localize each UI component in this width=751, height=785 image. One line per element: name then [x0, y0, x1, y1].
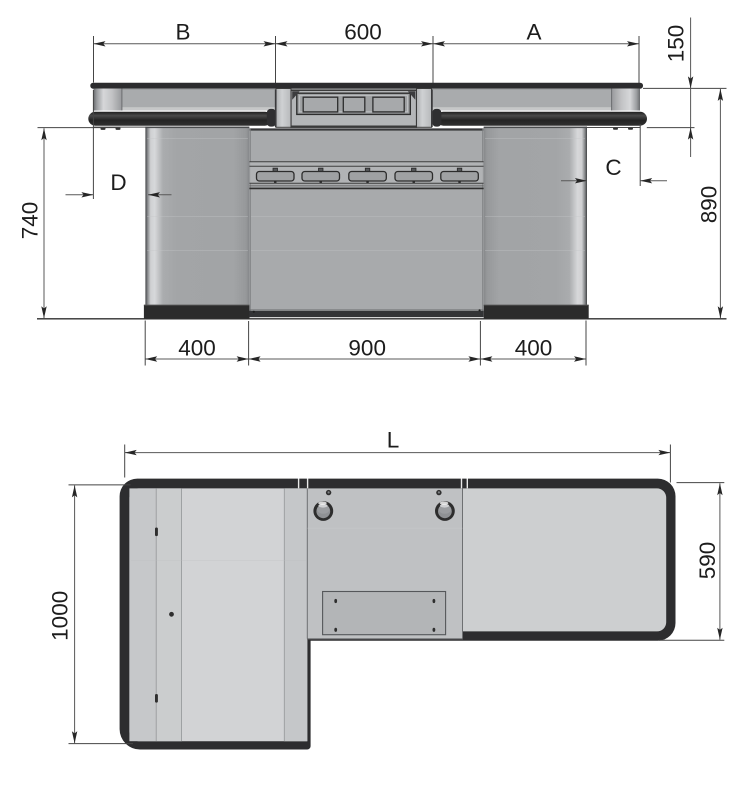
- svg-text:900: 900: [348, 335, 386, 360]
- svg-text:150: 150: [664, 25, 689, 63]
- svg-text:C: C: [605, 155, 621, 180]
- svg-text:890: 890: [697, 186, 722, 224]
- svg-text:600: 600: [344, 20, 382, 45]
- svg-text:740: 740: [18, 202, 43, 240]
- svg-text:A: A: [526, 20, 541, 45]
- svg-text:1000: 1000: [48, 591, 73, 641]
- svg-text:L: L: [387, 428, 400, 453]
- svg-text:400: 400: [178, 335, 216, 360]
- svg-text:D: D: [110, 170, 126, 195]
- svg-text:B: B: [175, 20, 190, 45]
- svg-text:590: 590: [695, 542, 720, 580]
- svg-text:400: 400: [515, 335, 553, 360]
